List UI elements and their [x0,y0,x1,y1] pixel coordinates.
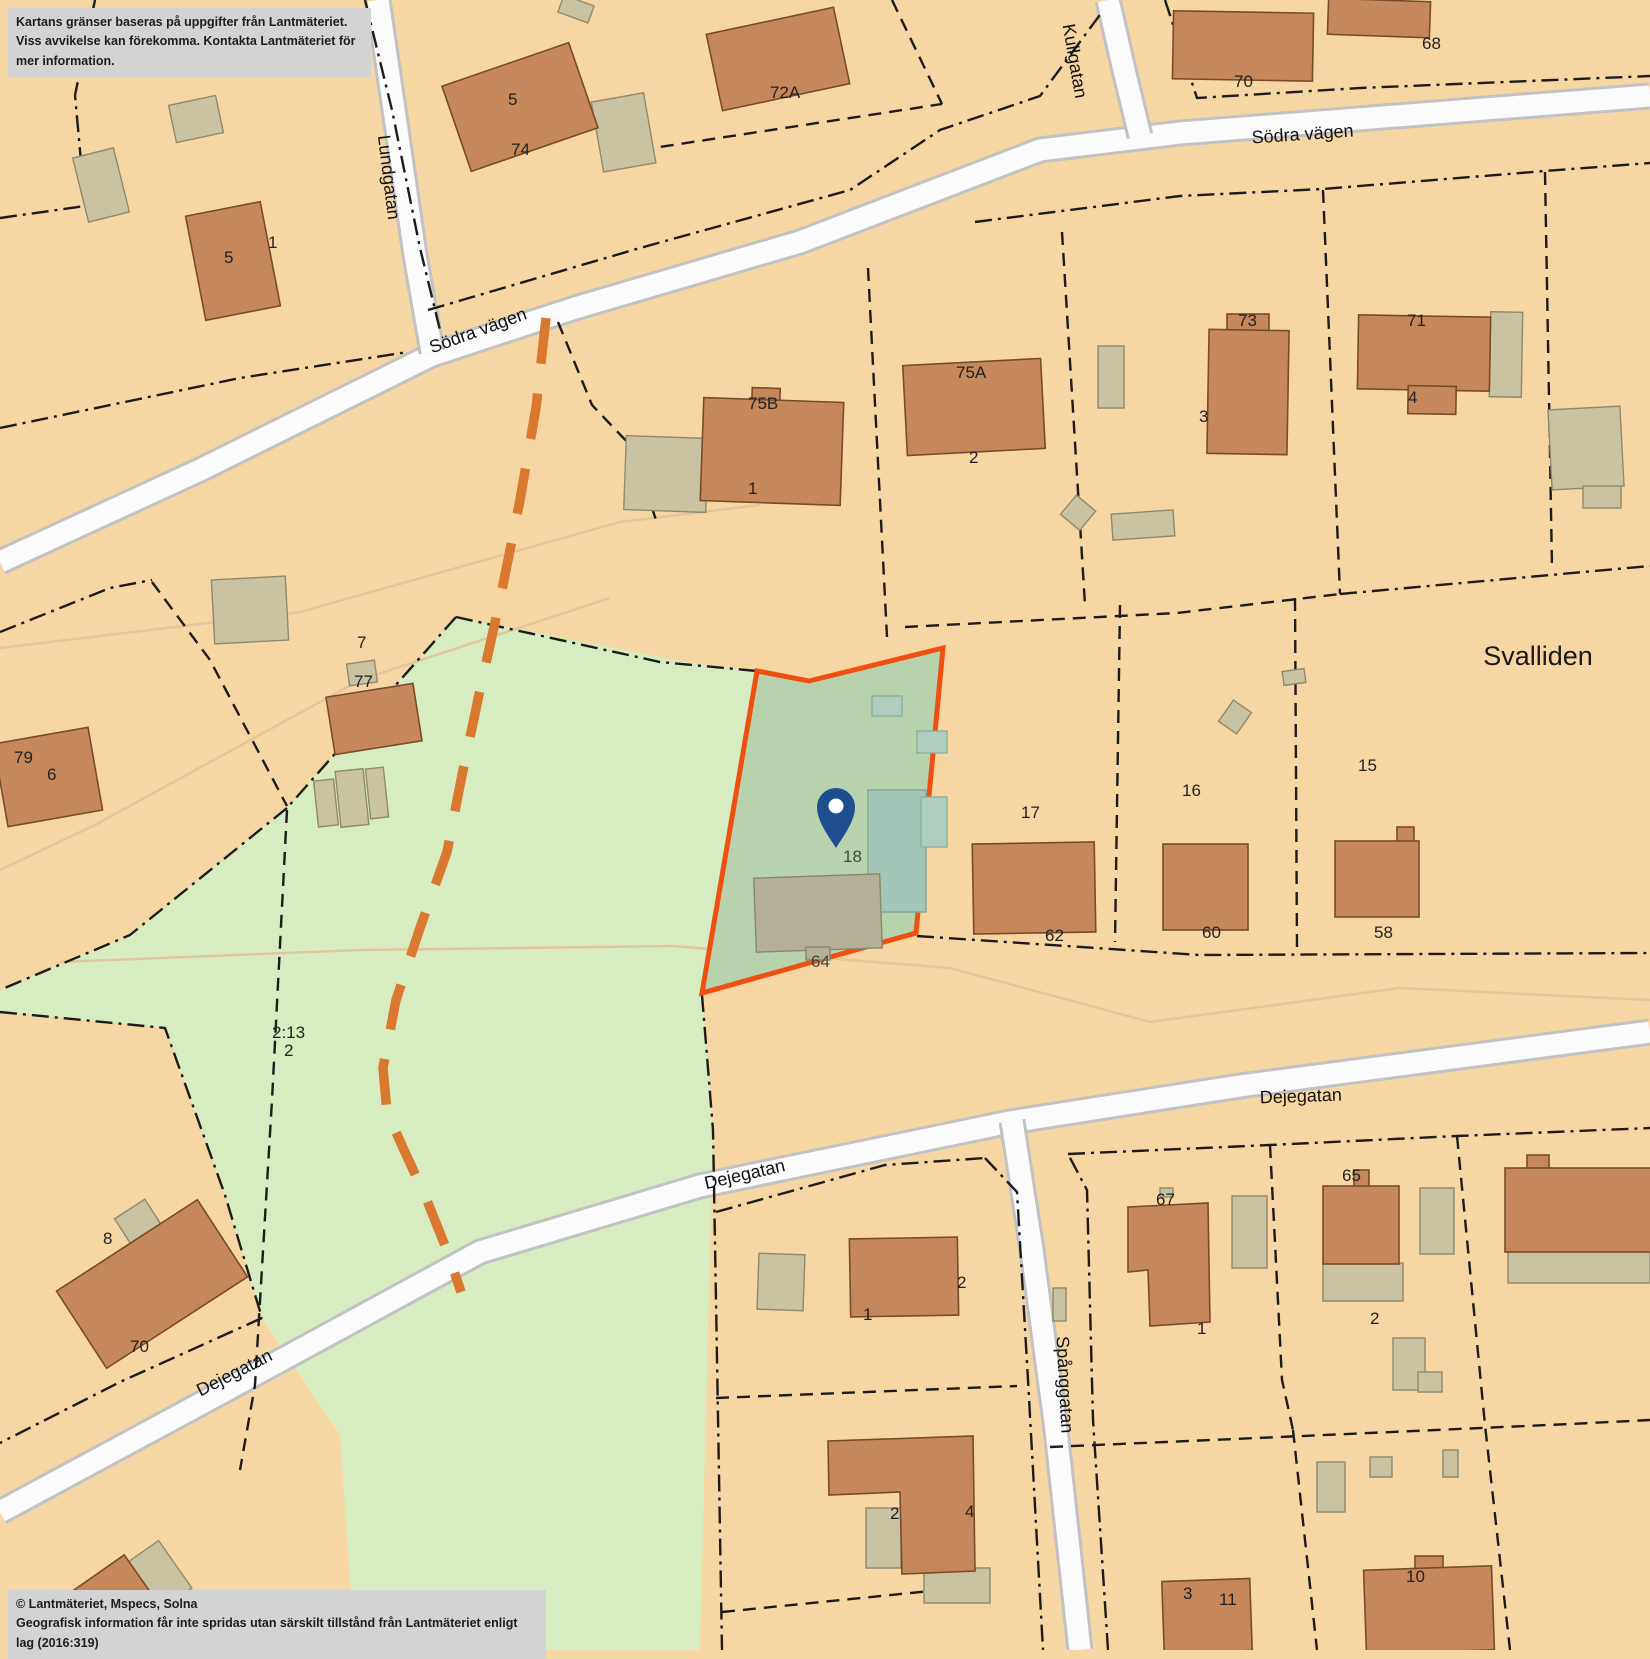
building [1172,11,1313,81]
parcel-label: 79 [14,748,33,767]
parcel-label: 1 [1197,1319,1206,1338]
copyright-line-1: © Lantmäteriet, Mspecs, Solna [16,1595,536,1614]
parcel-label: 2 [890,1504,899,1523]
outbuilding [314,779,339,827]
parcel-label: 70 [1234,72,1253,91]
parcel-label: 77 [354,672,373,691]
outbuilding [917,731,947,753]
building [1505,1168,1650,1252]
outbuilding [1420,1188,1454,1254]
building [700,398,844,506]
outbuilding [1418,1372,1442,1392]
outbuilding [1548,406,1624,490]
parcel-label: 75B [748,394,778,413]
parcel-label: 70 [130,1337,149,1356]
parcel-label: 58 [1374,923,1393,942]
parcel-label: 11 [1219,1590,1237,1609]
building [1323,1186,1399,1264]
outbuilding [1489,312,1522,398]
map-disclaimer-box: Kartans gränser baseras på uppgifter frå… [8,8,371,77]
parcel-label: 64 [811,952,830,971]
parcel-label: 1 [863,1305,872,1324]
outbuilding [591,93,656,172]
parcel-label: 60 [1202,923,1221,942]
outbuilding [1443,1450,1458,1477]
outbuilding [1508,1251,1650,1283]
street-label-dejegatan-east: Dejegatan [1259,1085,1342,1108]
parcel-label: 17 [1021,803,1040,822]
parcel-label: 15 [1358,756,1377,775]
building [1397,827,1414,842]
parcel-label: 2 [969,448,978,467]
parcel-label: 7 [357,633,366,652]
parcel-label: 8 [103,1229,112,1248]
parcel-label: 65 [1342,1166,1361,1185]
parcel-label: 73 [1238,311,1257,330]
map-copyright-box: © Lantmäteriet, Mspecs, Solna Geografisk… [8,1590,546,1659]
parcel-label: 2 [284,1041,293,1060]
building [1207,329,1289,454]
parcel-label: 71 [1407,311,1426,330]
property-building-annex [921,797,947,847]
parcel-label: 74 [511,140,530,159]
parcel-label: 2:13 [272,1023,305,1042]
building [1163,844,1248,930]
building [1327,0,1430,38]
parcel-label: 16 [1182,781,1201,800]
building [972,842,1096,934]
outbuilding [1323,1263,1403,1301]
outbuilding [1232,1196,1267,1268]
parcel-label: 67 [1156,1190,1175,1209]
outbuilding [1053,1288,1066,1321]
marker-number-label: 18 [843,847,862,866]
outbuilding [872,696,902,716]
parcel-label: 2 [1370,1309,1379,1328]
parcel-label: 3 [1183,1584,1192,1603]
parcel-label: 4 [965,1502,974,1521]
parcel-label: 2 [957,1273,966,1292]
map-canvas[interactable]: Lundgatan Kullgatan Södra vägen Södra vä… [0,0,1650,1650]
disclaimer-line-1: Kartans gränser baseras på uppgifter frå… [16,13,361,32]
outbuilding [1111,510,1175,540]
building [1335,841,1419,917]
parcel-label: 72A [770,83,801,102]
disclaimer-line-2: Viss avvikelse kan förekomma. Kontakta L… [16,32,361,71]
parcel-label: 10 [1406,1567,1425,1586]
outbuilding [335,769,369,828]
outbuilding [1370,1457,1392,1477]
area-name-label: Svalliden [1483,641,1593,671]
parcel-label: 5 [508,90,517,109]
parcel-label: 1 [268,233,277,252]
outbuilding [624,436,709,513]
parcel-label: 62 [1045,926,1064,945]
outbuilding [1282,669,1306,686]
parcel-label: 4 [1408,388,1417,407]
main-house [754,874,883,952]
parcel-label: 6 [47,765,56,784]
outbuilding [1317,1462,1345,1512]
outbuilding [757,1253,805,1311]
parcel-label: 75A [956,363,987,382]
building [1364,1566,1495,1650]
parcel-label: 5 [224,248,233,267]
outbuilding [1583,486,1621,508]
building [1162,1578,1252,1650]
copyright-line-2: Geografisk information får inte spridas … [16,1614,536,1653]
parcel-label: 3 [1199,407,1208,426]
outbuilding [1098,346,1124,408]
parcel-label: 68 [1422,34,1441,53]
outbuilding [211,576,288,644]
parcel-label: 1 [748,479,757,498]
building [1527,1155,1549,1169]
